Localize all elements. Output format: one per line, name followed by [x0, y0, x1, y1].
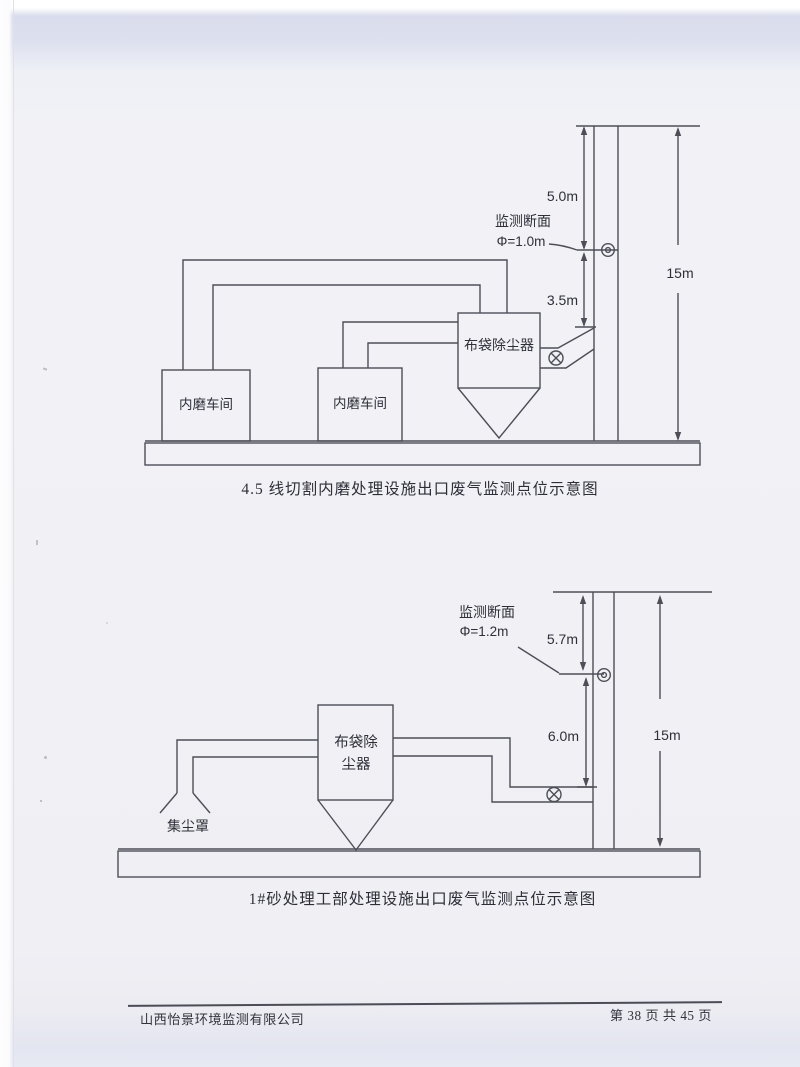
dim-5-7m-label: 5.7m: [547, 631, 578, 647]
scan-speck: [44, 756, 47, 759]
dim-15m-label: 15m: [666, 265, 693, 281]
dim-3-5m-arrow-up: [581, 252, 587, 261]
workshop2-label: 内磨车间: [333, 395, 387, 411]
duct-to-hood-lower: [193, 757, 318, 793]
dim-5m-arrow-up: [581, 126, 587, 135]
scanned-document-page: 内磨车间 内磨车间 布袋除尘器 5.0m 3.5m: [0, 0, 800, 1067]
monitor-diameter-label: Φ=1.0m: [497, 234, 546, 249]
ground-hatch: [118, 851, 700, 877]
dust-collector-label-line2: 尘器: [342, 756, 371, 773]
scan-speck: [40, 800, 42, 802]
duct-to-stack-lower: [540, 349, 594, 368]
ground-hatch: [145, 443, 700, 465]
dim-15m-arrow-up: [675, 127, 681, 136]
dim-6m-arrow-down: [583, 778, 589, 787]
hood-flare-left: [160, 793, 177, 813]
dust-collector-box: [318, 705, 393, 800]
scan-speck: [36, 540, 38, 545]
dim-5m-label: 5.0m: [547, 188, 578, 204]
duct-workshop1-b: [213, 285, 480, 370]
monitor-port-icon: [598, 669, 611, 682]
scan-speck: [106, 622, 108, 624]
diagram-bottom: 5.7m 监测断面 Φ=1.2m 6.0m 布袋除 尘器 集尘罩: [100, 585, 720, 882]
dim-15m-label: 15m: [653, 727, 680, 743]
duct-to-stack-upper: [540, 328, 594, 348]
scan-speck: [43, 367, 47, 370]
monitor-section-label: 监测断面: [459, 605, 515, 621]
scan-left-edge: [0, 0, 14, 1067]
diagram-top: 内磨车间 内磨车间 布袋除尘器 5.0m 3.5m: [100, 95, 720, 475]
dim-5-7m-arrow-down: [580, 662, 586, 671]
caption-bottom: 1#砂处理工部处理设施出口废气监测点位示意图: [100, 887, 745, 909]
duct-to-stack-lower: [393, 756, 593, 802]
dim-15m-arrow-up: [657, 595, 663, 604]
caption-top: 4.5 线切割内磨处理设施出口废气监测点位示意图: [100, 477, 740, 499]
dust-collector-label: 布袋除尘器: [464, 338, 534, 354]
hood-label: 集尘罩: [167, 818, 209, 835]
duct-to-hood-upper: [177, 740, 318, 793]
monitor-diameter-label: Φ=1.2m: [460, 624, 509, 639]
dim-5-7m-arrow-up: [580, 595, 586, 604]
footer-company: 山西怡景环境监测有限公司: [140, 1009, 304, 1028]
dust-collector-hopper: [318, 800, 393, 850]
dim-15m-arrow-down: [657, 838, 663, 847]
monitor-leader-line: [549, 244, 577, 250]
duct-workshop2-b: [368, 343, 458, 368]
dim-3-5m-label: 3.5m: [547, 292, 578, 308]
footer-page-number: 第 38 页 共 45 页: [540, 1005, 712, 1024]
duct-workshop2-a: [343, 322, 458, 368]
dim-6m-arrow-up: [583, 677, 589, 686]
dust-collector-hopper: [458, 388, 540, 438]
hood-flare-right: [193, 793, 210, 813]
workshop1-label: 内磨车间: [179, 396, 233, 412]
dim-15m-arrow-down: [675, 432, 681, 441]
monitor-leader-line: [518, 647, 559, 673]
monitor-section-label: 监测断面: [495, 214, 551, 230]
dim-6m-label: 6.0m: [548, 728, 579, 744]
dim-3-5m-arrow-down: [581, 318, 587, 327]
dim-5m-arrow-down: [581, 241, 587, 250]
dust-collector-label-line1: 布袋除: [334, 734, 378, 751]
duct-to-stack-upper: [393, 738, 593, 787]
